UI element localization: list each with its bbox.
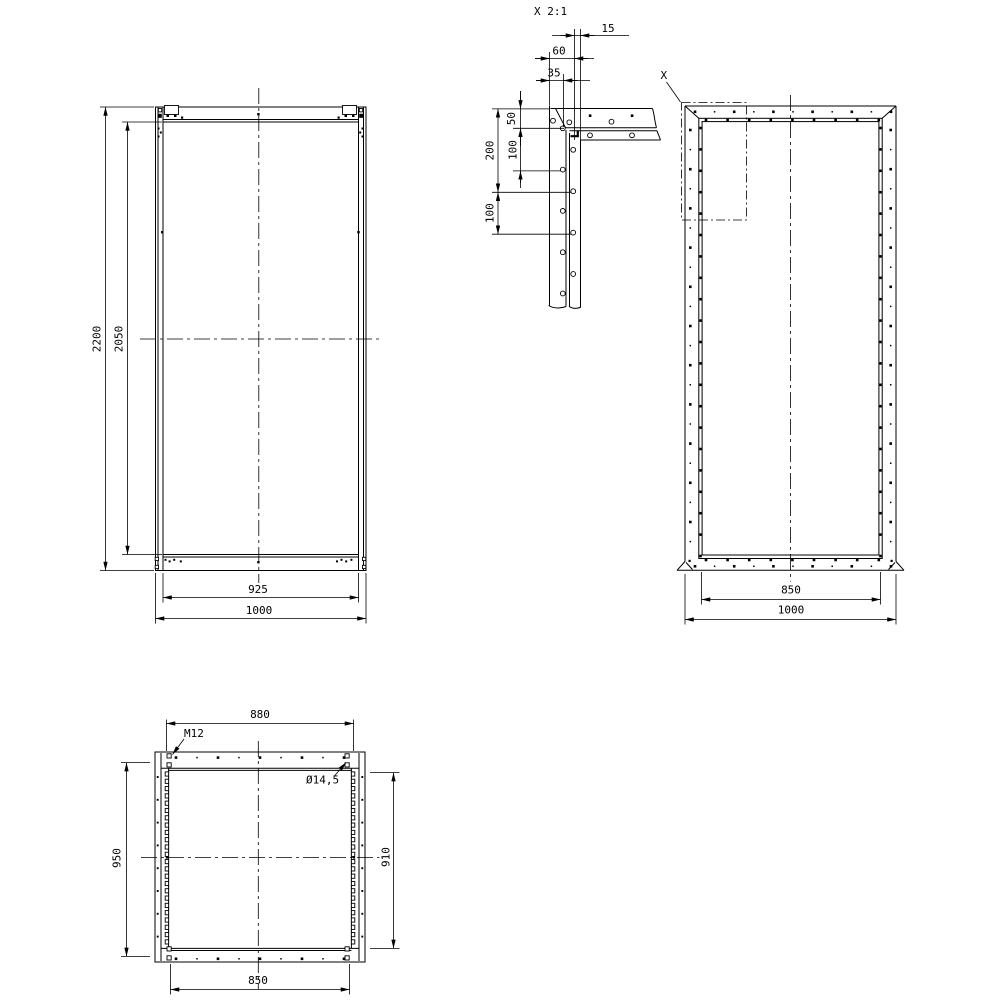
hole-row-top <box>175 756 346 759</box>
detail-boundary-box <box>682 103 747 221</box>
detail-marker-label: X <box>661 69 668 82</box>
detail-leader <box>667 82 681 102</box>
side-view: X 850 1000 <box>661 69 905 625</box>
dim-front-height-outer: 2200 <box>91 326 104 353</box>
post-hole-marks <box>155 109 366 569</box>
hole-col-left-outer <box>157 776 159 938</box>
dim-top-depth-left: 950 <box>111 848 124 868</box>
bolt-col-left-inner <box>699 127 702 558</box>
detail-title: X 2:1 <box>534 5 567 18</box>
detail-view: X 2:1 <box>484 5 661 308</box>
dim-detail-15: 15 <box>601 22 614 35</box>
dim-front-height-inner: 2050 <box>113 326 126 353</box>
dim-front-width-inner: 925 <box>248 583 268 596</box>
hole-row-bottom <box>175 958 346 961</box>
bolt-col-right-inner <box>879 127 882 558</box>
dim-detail-35: 35 <box>547 67 560 80</box>
dim-detail-50: 50 <box>505 112 518 125</box>
hole-col-right-outer <box>361 776 363 938</box>
dim-side-width-inner: 850 <box>781 584 801 597</box>
thread-callout: M12 <box>184 727 204 740</box>
hole-dia-callout: Ø14,5 <box>306 774 339 787</box>
hole-col-left-outer <box>689 129 692 543</box>
front-view: 2200 2050 925 1000 <box>91 88 380 624</box>
hole-col-right-outer <box>889 129 892 543</box>
dim-detail-100-lower: 100 <box>484 203 497 223</box>
dim-detail-100-upper: 100 <box>507 140 520 160</box>
dim-detail-60: 60 <box>552 45 565 58</box>
hole-row-top-outer <box>694 111 893 114</box>
bolt-row-bottom-inner <box>705 559 880 562</box>
post-hole-column-right <box>571 147 576 276</box>
bolt-row-top-inner <box>705 119 880 122</box>
dim-detail-200: 200 <box>484 141 497 161</box>
top-view: 880 850 950 910 M12 Ø14,5 <box>111 708 400 995</box>
technical-drawing: 2200 2050 925 1000 X 2:1 <box>0 0 1000 1000</box>
side-dimensions: 850 1000 <box>685 572 896 625</box>
drawing-canvas: 2200 2050 925 1000 X 2:1 <box>0 0 1000 1000</box>
dim-front-width-outer: 1000 <box>246 604 273 617</box>
dim-side-width-outer: 1000 <box>778 604 805 617</box>
hole-row-bottom-outer <box>694 565 893 568</box>
dim-top-depth-right: 910 <box>380 847 393 867</box>
dim-top-width-bottom: 850 <box>248 974 268 987</box>
dim-top-width-top: 880 <box>250 708 270 721</box>
top-dimensions: 880 850 950 910 M12 Ø14,5 <box>111 708 400 995</box>
post-hole-column-left <box>560 126 565 296</box>
front-dimensions: 2200 2050 925 1000 <box>91 107 367 624</box>
